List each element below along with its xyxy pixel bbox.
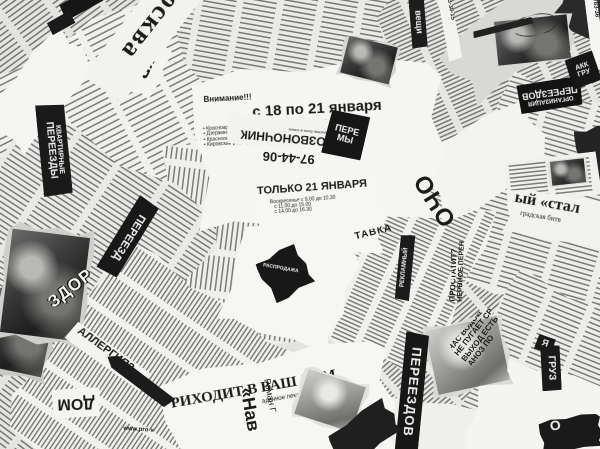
dom-block-upside-down-text: ДОМ bbox=[54, 394, 98, 412]
truck-photo bbox=[547, 156, 590, 188]
dom-block-upside-down: ДОМ bbox=[51, 387, 100, 419]
truck-photo-image bbox=[550, 158, 587, 186]
ya-box-text: Я bbox=[538, 337, 553, 350]
tolko-21-ad: ТОЛЬКО 21 ЯНВАРЯВоскресенье с 9.00 до 10… bbox=[249, 171, 389, 262]
pereezdov-vertical-banner-text: ПЕРЕЕЗДОВ bbox=[400, 344, 424, 441]
prostatit-rotated-text-text: НЕРВНОЕ ПЕРЕН bbox=[457, 223, 467, 305]
reklamny-vertical-banner-text: РЕКЛАМНЫЙ bbox=[399, 244, 410, 290]
gruz-box-text: ГРУЗ bbox=[545, 352, 557, 383]
newspaper-collage-photo: Внимание!!!с 18 по 21 января• Красноарме… bbox=[0, 0, 600, 449]
veshchi-strip-text: вещи bbox=[412, 7, 423, 37]
prostatit-rotated-text: ПРОСТАТИТ?НЕРВНОЕ ПЕРЕН bbox=[449, 222, 484, 305]
rasprodazha-dark-ad-text: РАСПРОДАЖА bbox=[260, 263, 306, 276]
